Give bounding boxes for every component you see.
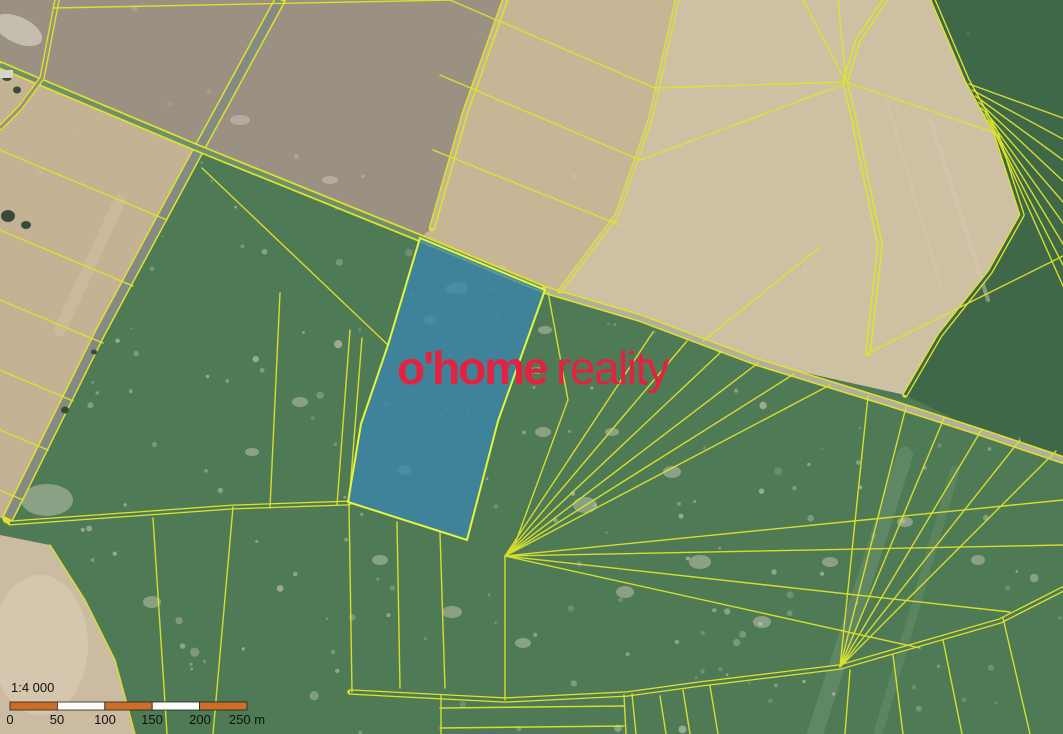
scale-tick: 250 m bbox=[229, 712, 265, 727]
aerial-cadastral-map[interactable]: úz o'home reality 1:4 000 0 50 100 150 2… bbox=[0, 0, 1063, 734]
watermark-logo: o'home reality bbox=[397, 342, 670, 394]
scale-tick: 50 bbox=[50, 712, 64, 727]
scale-tick: 0 bbox=[6, 712, 13, 727]
scale-tick: 150 bbox=[141, 712, 163, 727]
scale-tick: 100 bbox=[94, 712, 116, 727]
scale-tick: 200 bbox=[189, 712, 211, 727]
watermark-brand-bold: o'home bbox=[397, 342, 548, 394]
cadastral-map-viewport[interactable]: úz o'home reality 1:4 000 0 50 100 150 2… bbox=[0, 0, 1063, 734]
watermark-brand-light: reality bbox=[556, 342, 670, 394]
scale-ratio-label: 1:4 000 bbox=[11, 680, 54, 695]
